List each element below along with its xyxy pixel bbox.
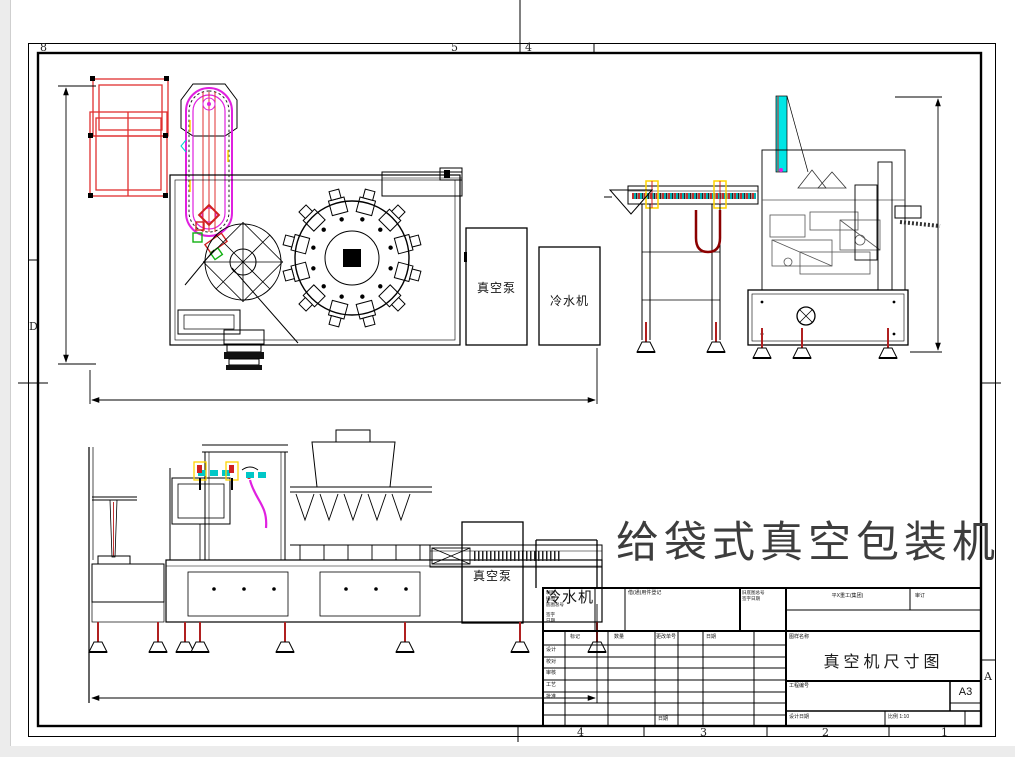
tb-row-audit: 审核: [546, 670, 556, 676]
paper-sheet: [10, 0, 1015, 746]
zone-bottom-3: 3: [700, 726, 707, 739]
chiller-label-plan: 冷水机: [539, 292, 600, 309]
cad-sheet: { "drawing": { "main_title": "给袋式真空包装机",…: [0, 0, 1015, 757]
tb-grid-h1: 标记: [570, 634, 580, 640]
tb-stub-5: 日期: [546, 618, 555, 623]
zone-top-8: 8: [40, 41, 47, 54]
tb-stub-3: 底图总号: [546, 602, 564, 607]
tb-row-approve: 批准: [546, 694, 556, 700]
vacuum-pump-label-plan: 真空泵: [466, 279, 527, 296]
tb-stub-4: 签字: [546, 612, 555, 617]
tb-row-design: 设计: [546, 647, 556, 653]
tb-project-label: 工程编号: [789, 683, 809, 689]
tb-name-label: 图样名称: [789, 634, 809, 640]
tb-company: 平X重工(集团): [785, 593, 910, 599]
tb-scale: 比例 1:10: [888, 714, 909, 720]
zone-top-5: 5: [451, 41, 458, 54]
main-drawing-title: 给袋式真空包装机: [616, 508, 1000, 570]
tb-stub-2: 描图: [546, 596, 555, 601]
tb-approve: 审订: [915, 593, 925, 599]
zone-bottom-4: 4: [577, 726, 584, 739]
zone-bottom-1: 1: [941, 726, 948, 739]
tb-grid-h3: 更改单号: [656, 634, 676, 640]
tb-register-label: 借(通)用件登记: [628, 590, 661, 596]
tb-stub-1: 制图: [546, 590, 555, 595]
zone-bottom-2: 2: [822, 726, 829, 739]
paper-size: A3: [950, 686, 981, 698]
titleblock-drawing-name: 真空机尺寸图: [786, 648, 981, 672]
zone-top-4: 4: [525, 41, 532, 54]
tb-row-check: 校对: [546, 659, 556, 665]
zone-left-d: D: [29, 320, 38, 333]
tb-grid-h2: 数量: [614, 634, 624, 640]
tb-grid-h4: 日期: [706, 634, 716, 640]
tb-sheet-note: 日期: [658, 716, 668, 722]
vacuum-pump-label-front: 真空泵: [462, 567, 523, 584]
tb-row-process: 工艺: [546, 682, 556, 688]
tb-oldno-label: 旧底图总号: [742, 590, 765, 595]
tb-signdate-label: 签字日期: [742, 596, 760, 601]
zone-right-a: A: [984, 670, 992, 683]
tb-date-label: 设计日期: [789, 714, 809, 720]
